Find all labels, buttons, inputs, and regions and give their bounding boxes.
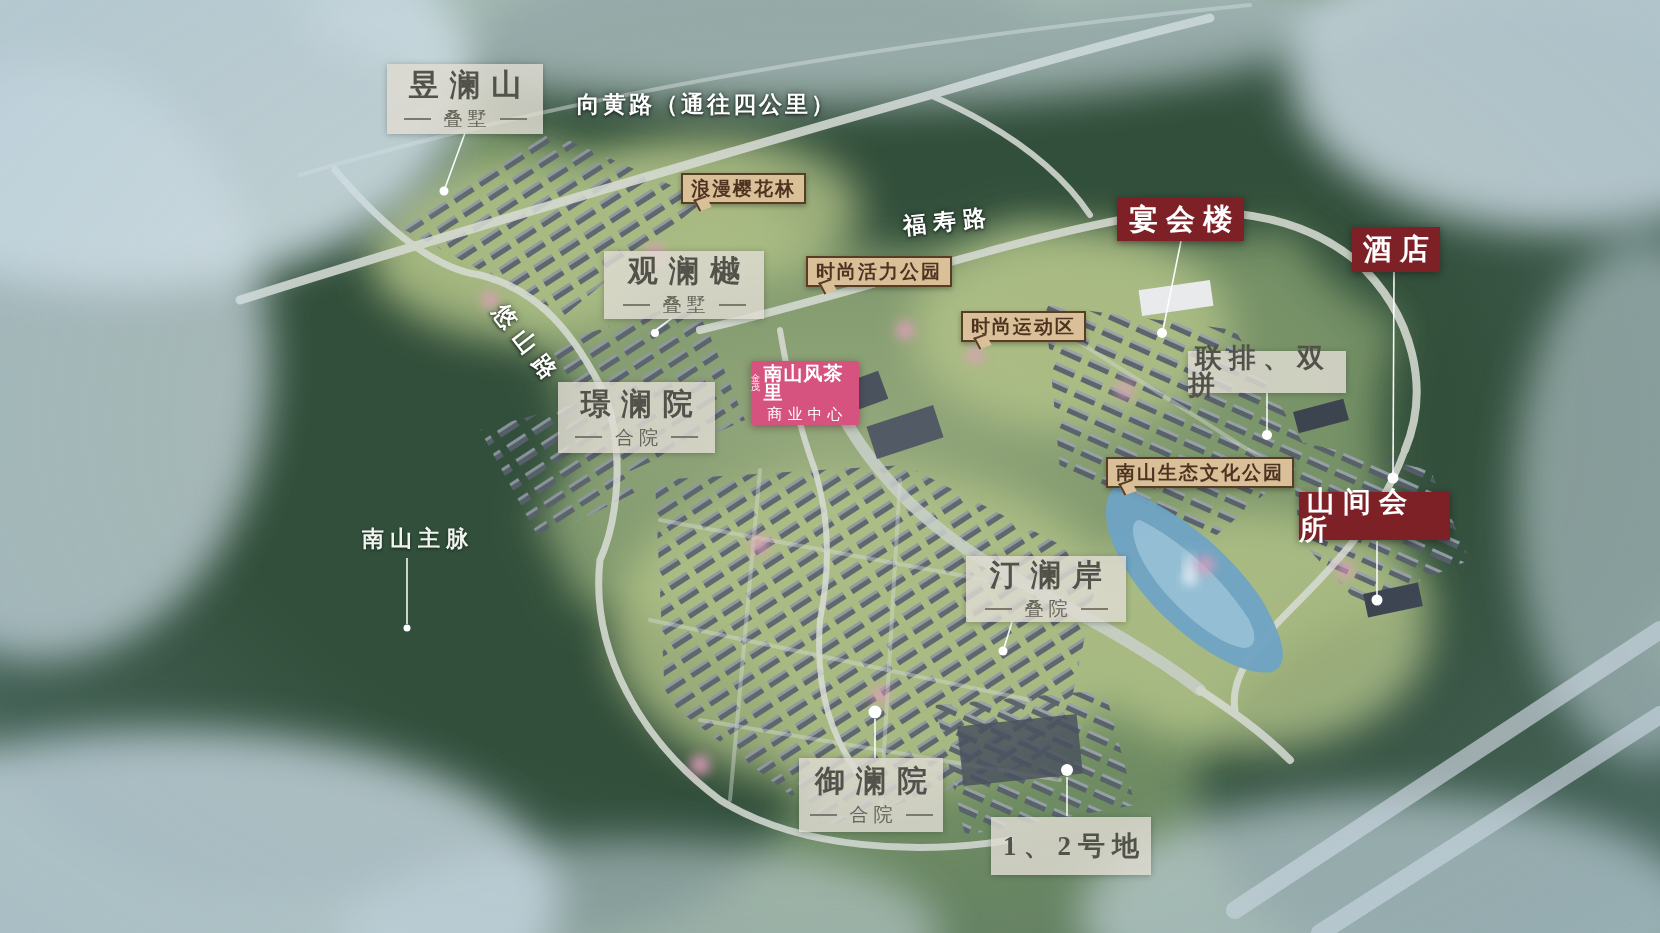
plate-subtitle: 合院 <box>575 428 698 447</box>
dash-left <box>985 608 1012 610</box>
label-eco-culture-park: 南山生态文化公园 <box>1106 457 1294 488</box>
label-guanlanyue: 观澜樾 叠墅 <box>604 251 764 319</box>
dash-right <box>500 118 527 120</box>
plate-title: 御澜院 <box>804 766 938 796</box>
label-banquet-hall: 宴会楼 <box>1117 197 1244 241</box>
plate-title: 璟澜院 <box>570 389 704 419</box>
brand-name: 南山风茶里 <box>764 364 859 402</box>
dash-left <box>575 436 602 438</box>
plate-title: 联排、双拼 <box>1188 345 1346 399</box>
label-commercial-center: 金茂 南山风茶里 商业中心 <box>751 361 859 425</box>
plate-subtitle: 合院 <box>810 805 933 824</box>
dash-right <box>671 436 698 438</box>
dash-left <box>623 304 650 306</box>
brand-prefix: 金茂 <box>751 374 761 393</box>
label-mountain-clubhouse: 山间会所 <box>1299 492 1450 540</box>
plate-subtitle: 叠院 <box>985 599 1108 618</box>
plate-title: 汀澜岸 <box>979 560 1113 590</box>
plate-title: 1、2号地 <box>996 833 1146 860</box>
dash-right <box>1081 608 1108 610</box>
label-plot-1-2: 1、2号地 <box>991 817 1151 875</box>
dash-right <box>906 814 933 816</box>
masterplan-map: 昱澜山 叠墅 观澜樾 叠墅 璟澜院 合院 汀澜岸 叠院 御澜院 合院 联排、双拼… <box>0 0 1660 933</box>
label-tinglanan: 汀澜岸 叠院 <box>966 556 1126 622</box>
dash-left <box>404 118 431 120</box>
plate-subtitle: 叠墅 <box>623 295 746 314</box>
label-yulanshan: 昱澜山 叠墅 <box>387 64 543 134</box>
label-hotel: 酒店 <box>1352 227 1440 272</box>
dash-right <box>719 304 746 306</box>
label-jinglanyuan: 璟澜院 合院 <box>558 382 715 453</box>
dash-left <box>810 814 837 816</box>
plate-title: 观澜樾 <box>617 256 751 286</box>
plate-subtitle: 叠墅 <box>404 109 527 128</box>
commercial-center-text: 商业中心 <box>763 407 848 422</box>
label-main-ridge: 南山主脉 <box>362 528 474 550</box>
plate-title: 昱澜山 <box>398 70 532 100</box>
label-vitality-park: 时尚活力公园 <box>806 256 952 287</box>
label-yulanyuan: 御澜院 合院 <box>799 758 943 832</box>
label-sakura-forest: 浪漫樱花林 <box>681 173 806 204</box>
brand-logo: 金茂 南山风茶里 <box>751 364 859 402</box>
label-lianpai-shuangpin: 联排、双拼 <box>1188 351 1346 393</box>
road-xianghuang: 向黄路（通往四公里） <box>577 93 837 116</box>
label-sports-zone: 时尚运动区 <box>961 311 1086 342</box>
